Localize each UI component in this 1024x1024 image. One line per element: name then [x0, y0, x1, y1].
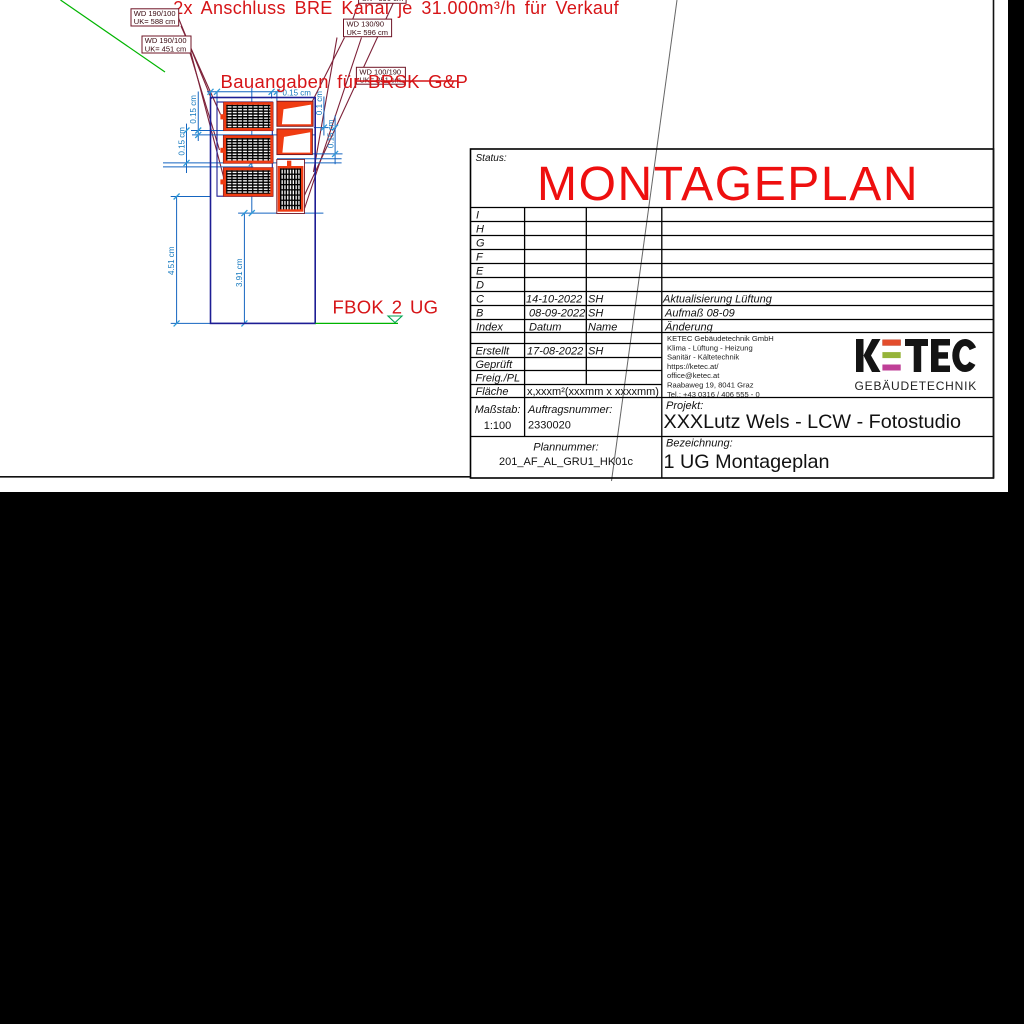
svg-text:1:100: 1:100: [484, 420, 512, 432]
svg-text:C: C: [476, 294, 484, 306]
svg-text:UK= 588 cm: UK= 588 cm: [134, 17, 175, 26]
svg-text:Sanitär - Kältetechnik: Sanitär - Kältetechnik: [667, 353, 739, 362]
svg-text:KETEC Gebäudetechnik GmbH: KETEC Gebäudetechnik GmbH: [667, 334, 774, 343]
svg-text:D: D: [476, 280, 484, 292]
svg-text:I: I: [476, 210, 479, 222]
svg-text:SH: SH: [588, 294, 603, 306]
svg-text:G: G: [476, 238, 485, 250]
svg-text:E: E: [476, 266, 484, 278]
svg-text:Tel.: +43 0316 / 406 555 - 0: Tel.: +43 0316 / 406 555 - 0: [667, 390, 760, 399]
svg-text:F: F: [476, 252, 484, 264]
svg-text:UK= 590 cm: UK= 590 cm: [362, 0, 403, 3]
svg-text:3.91 cm: 3.91 cm: [235, 258, 244, 287]
svg-text:Klima - Lüftung - Heizung: Klima - Lüftung - Heizung: [667, 343, 753, 352]
svg-text:Fläche: Fläche: [476, 386, 509, 398]
svg-text:Freig./PL: Freig./PL: [476, 373, 521, 385]
svg-text:SH: SH: [588, 346, 603, 358]
svg-text:Bezeichnung:: Bezeichnung:: [666, 438, 733, 450]
svg-text:Auftragsnummer:: Auftragsnummer:: [527, 404, 612, 416]
svg-text:14-10-2022: 14-10-2022: [526, 294, 582, 306]
svg-text:4.51 cm: 4.51 cm: [167, 246, 176, 275]
svg-text:0.15 cm: 0.15 cm: [177, 127, 186, 156]
svg-text:Maßstab:: Maßstab:: [475, 404, 521, 416]
svg-text:x,xxxm²(xxxmm x xxxxmm): x,xxxm²(xxxmm x xxxxmm): [527, 386, 659, 398]
svg-text:SH: SH: [588, 308, 603, 320]
svg-text:GEBÄUDETECHNIK: GEBÄUDETECHNIK: [855, 379, 978, 393]
svg-text:XXXLutz Wels - LCW - Fotostudi: XXXLutz Wels - LCW - Fotostudio: [664, 411, 962, 433]
svg-text:08-09-2022: 08-09-2022: [529, 308, 585, 320]
svg-text:0.1 cm: 0.1 cm: [315, 91, 324, 115]
svg-text:Datum: Datum: [529, 322, 561, 334]
svg-text:17-08-2022: 17-08-2022: [527, 346, 583, 358]
svg-text:B: B: [476, 308, 483, 320]
svg-text:Status:: Status:: [476, 153, 507, 164]
svg-text:office@ketec.at: office@ketec.at: [667, 371, 720, 380]
svg-text:UK= 596 cm: UK= 596 cm: [347, 28, 388, 37]
svg-text:Plannummer:: Plannummer:: [533, 441, 598, 453]
svg-text:https://ketec.at/: https://ketec.at/: [667, 362, 719, 371]
svg-text:H: H: [476, 224, 484, 236]
svg-text:Name: Name: [588, 322, 617, 334]
svg-text:MONTAGEPLAN: MONTAGEPLAN: [537, 158, 919, 211]
svg-text:0.15 cm: 0.15 cm: [326, 119, 335, 148]
svg-text:Raabaweg 19, 8041 Graz: Raabaweg 19, 8041 Graz: [667, 381, 754, 390]
svg-text:UK= 451 cm: UK= 451 cm: [145, 44, 186, 53]
svg-text:Geprüft: Geprüft: [476, 359, 514, 371]
svg-text:0.15 cm: 0.15 cm: [189, 95, 198, 124]
svg-text:FBOK 2 UG: FBOK 2 UG: [333, 297, 439, 318]
svg-text:Index: Index: [476, 322, 503, 334]
svg-text:Aktualisierung Lüftung: Aktualisierung Lüftung: [662, 294, 773, 306]
svg-text:Änderung: Änderung: [664, 322, 714, 334]
svg-text:201_AF_AL_GRU1_HK01c: 201_AF_AL_GRU1_HK01c: [499, 456, 633, 468]
svg-text:Erstellt: Erstellt: [476, 346, 511, 358]
svg-text:1 UG Montageplan: 1 UG Montageplan: [664, 451, 830, 473]
svg-text:2330020: 2330020: [528, 420, 571, 432]
svg-text:Aufmaß 08-09: Aufmaß 08-09: [664, 308, 735, 320]
